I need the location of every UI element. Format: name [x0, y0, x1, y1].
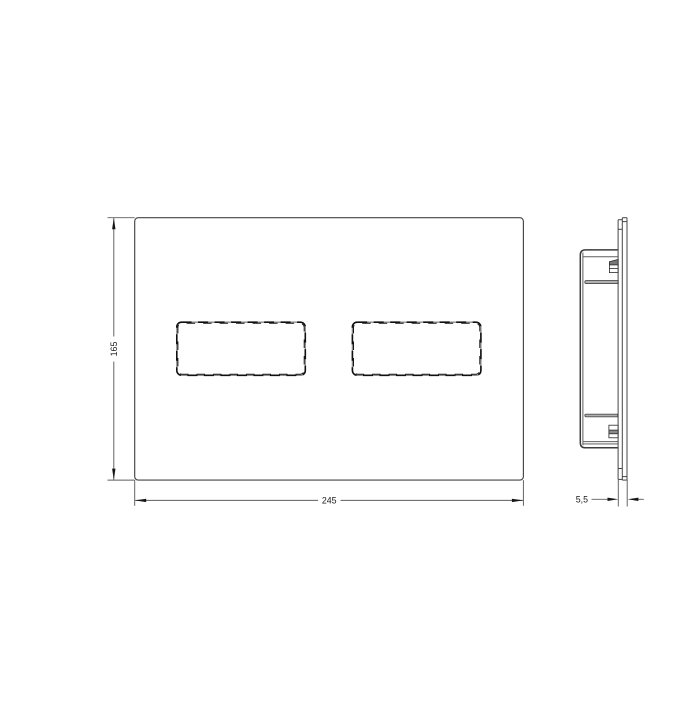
svg-text:165: 165: [109, 342, 119, 357]
svg-text:245: 245: [322, 496, 337, 506]
svg-text:5,5: 5,5: [576, 495, 588, 505]
